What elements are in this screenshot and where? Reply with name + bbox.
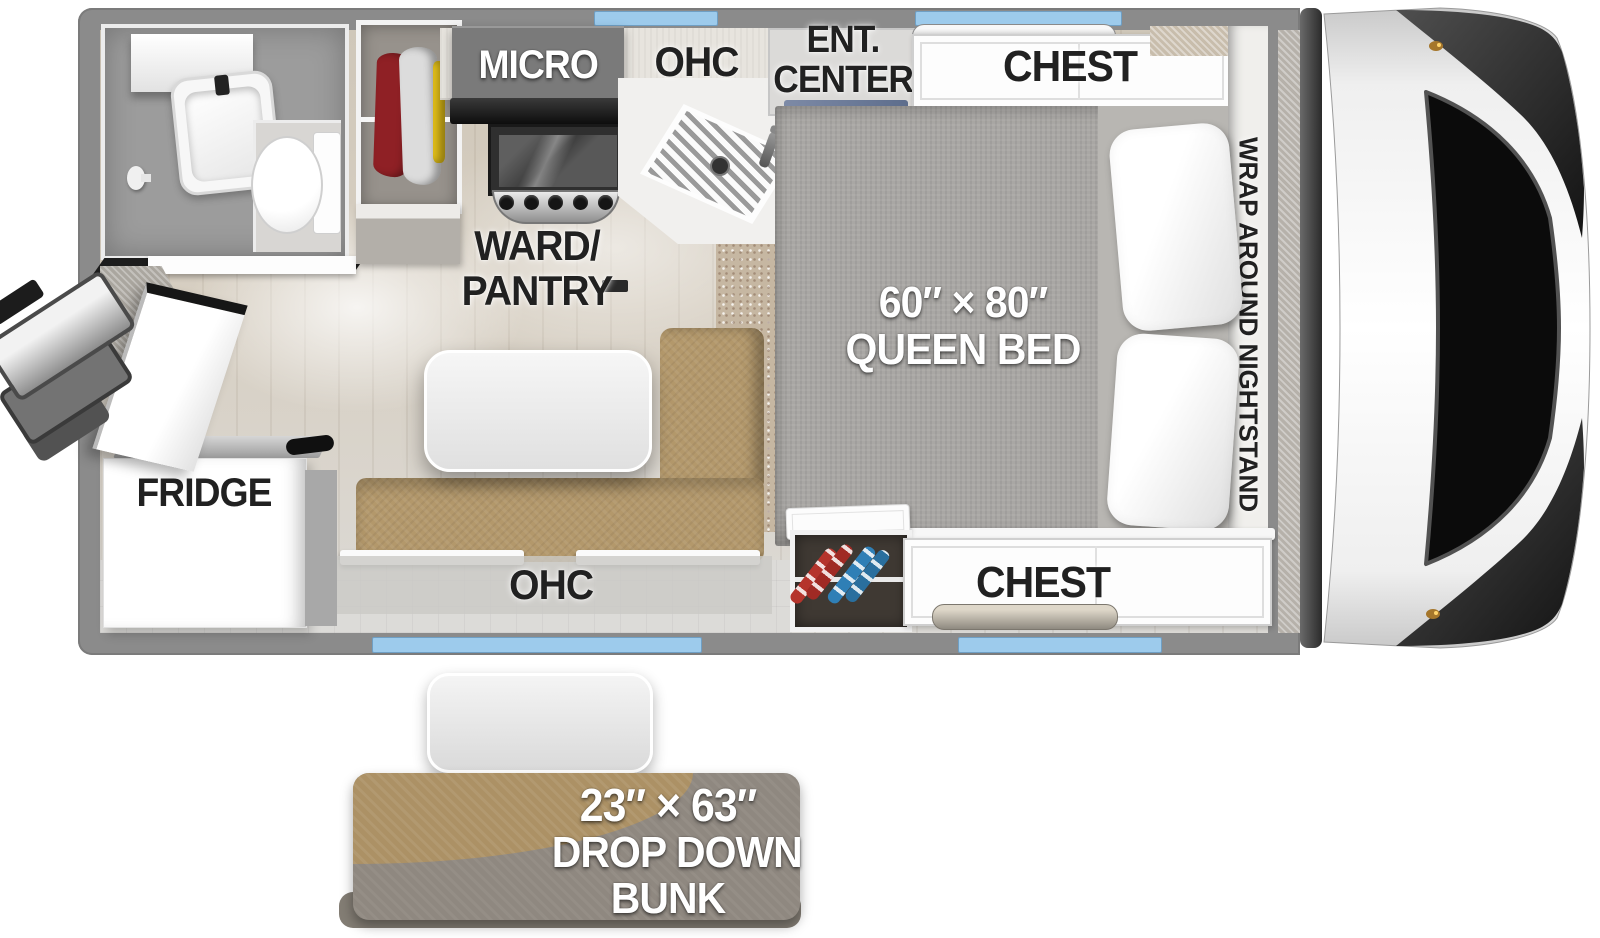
- ent-center-label: ENT. CENTER: [773, 20, 913, 101]
- cooktop-burners: [492, 190, 620, 224]
- dinette-ohc-cabinet: OHC: [330, 556, 772, 614]
- marker-light: [1426, 609, 1440, 619]
- window-front-left: [594, 11, 718, 26]
- ward-pantry-label: WARD/ PANTRY: [444, 224, 630, 313]
- window-rear-left: [372, 637, 702, 653]
- burner-knob: [548, 195, 563, 210]
- bathroom: [101, 24, 349, 260]
- shelf-ledge: [148, 256, 356, 274]
- bunk-label: 23″ × 63″ DROP DOWN BUNK: [552, 781, 785, 923]
- toilet: [251, 136, 323, 234]
- range-oven: [488, 124, 628, 196]
- dinette-bench-back: [660, 328, 764, 486]
- chest-rear-label: CHEST: [913, 560, 1173, 607]
- sink-drain: [710, 156, 730, 176]
- bed-label: 60″ × 80″ QUEEN BED: [824, 280, 1103, 373]
- kitchen-ohc-label: OHC: [638, 40, 754, 85]
- nightstand-label: WRAP AROUND NIGHTSTAND: [1233, 137, 1264, 512]
- burner-knob: [524, 195, 539, 210]
- fridge-side-panel: [305, 470, 337, 626]
- chest-rear-grab-bar: [932, 604, 1118, 630]
- microwave-cabinet: MICRO: [452, 26, 624, 102]
- bunk-table: [427, 673, 653, 773]
- micro-label: MICRO: [478, 44, 597, 86]
- window-rear-right: [958, 637, 1162, 653]
- burner-knob: [598, 195, 613, 210]
- door-handle: [127, 162, 151, 194]
- dinette-ohc-label: OHC: [509, 563, 593, 608]
- burner-knob: [499, 195, 514, 210]
- pillow: [1107, 121, 1244, 333]
- dinette-table: [424, 350, 652, 472]
- oven-window: [499, 135, 617, 187]
- pillow: [1105, 332, 1240, 532]
- truck-camper-floorplan: MICRO OHC ENT. CENTER CHEST WRAP AROUND …: [0, 0, 1600, 938]
- entry-steps: [0, 292, 150, 492]
- marker-light: [1429, 41, 1443, 51]
- marker-light-glint: [1437, 43, 1441, 47]
- shoe-cubby: [790, 530, 912, 632]
- marker-light-glint: [1434, 611, 1438, 615]
- burner-knob: [573, 195, 588, 210]
- truck-cab: [1300, 2, 1600, 654]
- sink-faucet: [214, 74, 230, 95]
- range-hood: [450, 98, 630, 124]
- front-wall: [1278, 30, 1300, 633]
- cab-rear-wall: [1300, 8, 1322, 648]
